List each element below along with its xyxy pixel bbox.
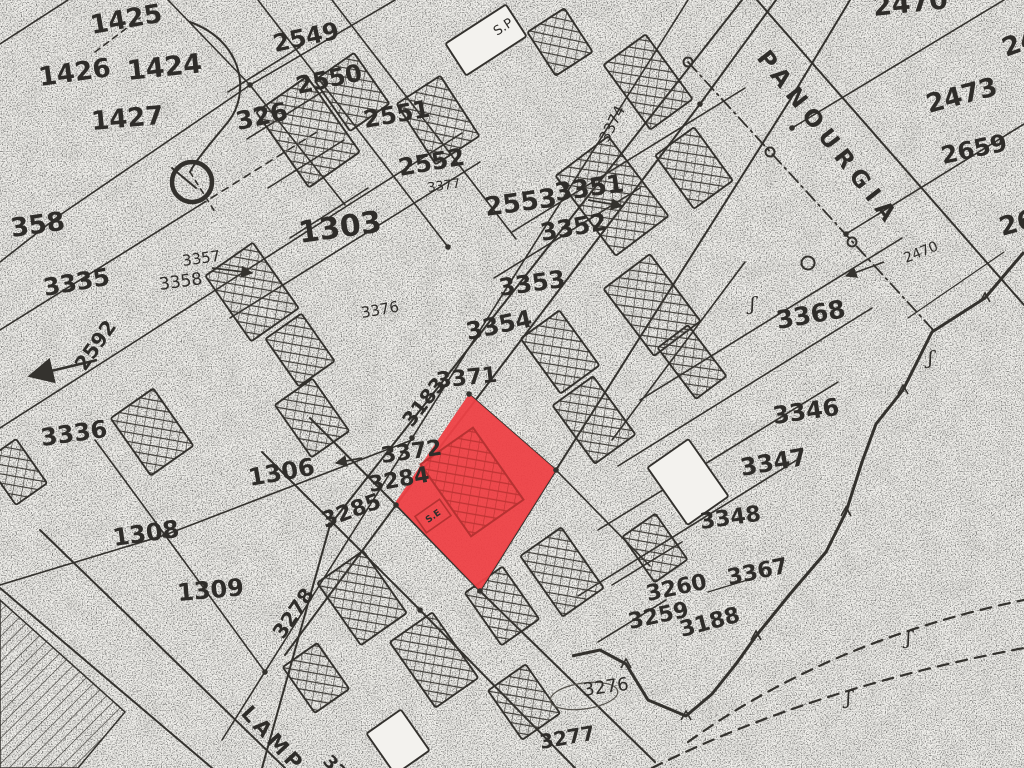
boundary-vertex-dot bbox=[553, 467, 559, 473]
boundary-vertex-dot bbox=[466, 391, 472, 397]
boundary-vertex-dot bbox=[445, 244, 451, 250]
boundary-vertex-dot bbox=[843, 231, 849, 237]
parcel-label-1427: 1427 bbox=[90, 101, 165, 137]
boundary-vertex-dot bbox=[393, 502, 399, 508]
boundary-vertex-dot bbox=[417, 607, 423, 613]
map-canvas: S.Eʃʃʃʃ142514261424142732625492550255125… bbox=[0, 0, 1024, 768]
parcel-label-1309: 1309 bbox=[176, 573, 245, 607]
boundary-vertex-dot bbox=[247, 82, 253, 88]
boundary-vertex-dot bbox=[262, 669, 268, 675]
boundary-vertex-dot bbox=[477, 588, 483, 594]
boundary-vertex-dot bbox=[789, 125, 795, 131]
boundary-vertex-dot bbox=[697, 101, 703, 107]
cadastral-map: S.Eʃʃʃʃ142514261424142732625492550255125… bbox=[0, 0, 1024, 768]
